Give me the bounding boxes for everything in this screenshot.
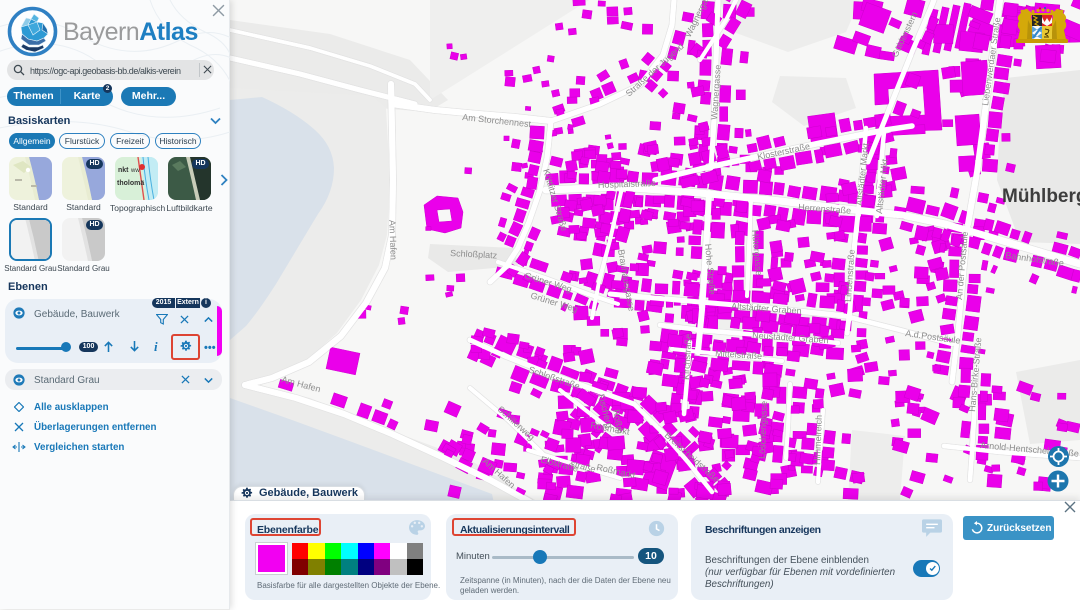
svg-text:ww: ww (130, 168, 140, 174)
svg-text:tholomä: tholomä (117, 180, 144, 187)
svg-text:nkt: nkt (118, 167, 129, 174)
svg-text:Löschengasse: Löschengasse (757, 401, 769, 459)
svg-text:Hospitalstraße: Hospitalstraße (598, 178, 656, 190)
svg-text:Am Hafen: Am Hafen (387, 220, 398, 260)
svg-text:Mühlberg: Mühlberg (1002, 186, 1080, 207)
svg-text:Himmelreich: Himmelreich (812, 415, 824, 465)
